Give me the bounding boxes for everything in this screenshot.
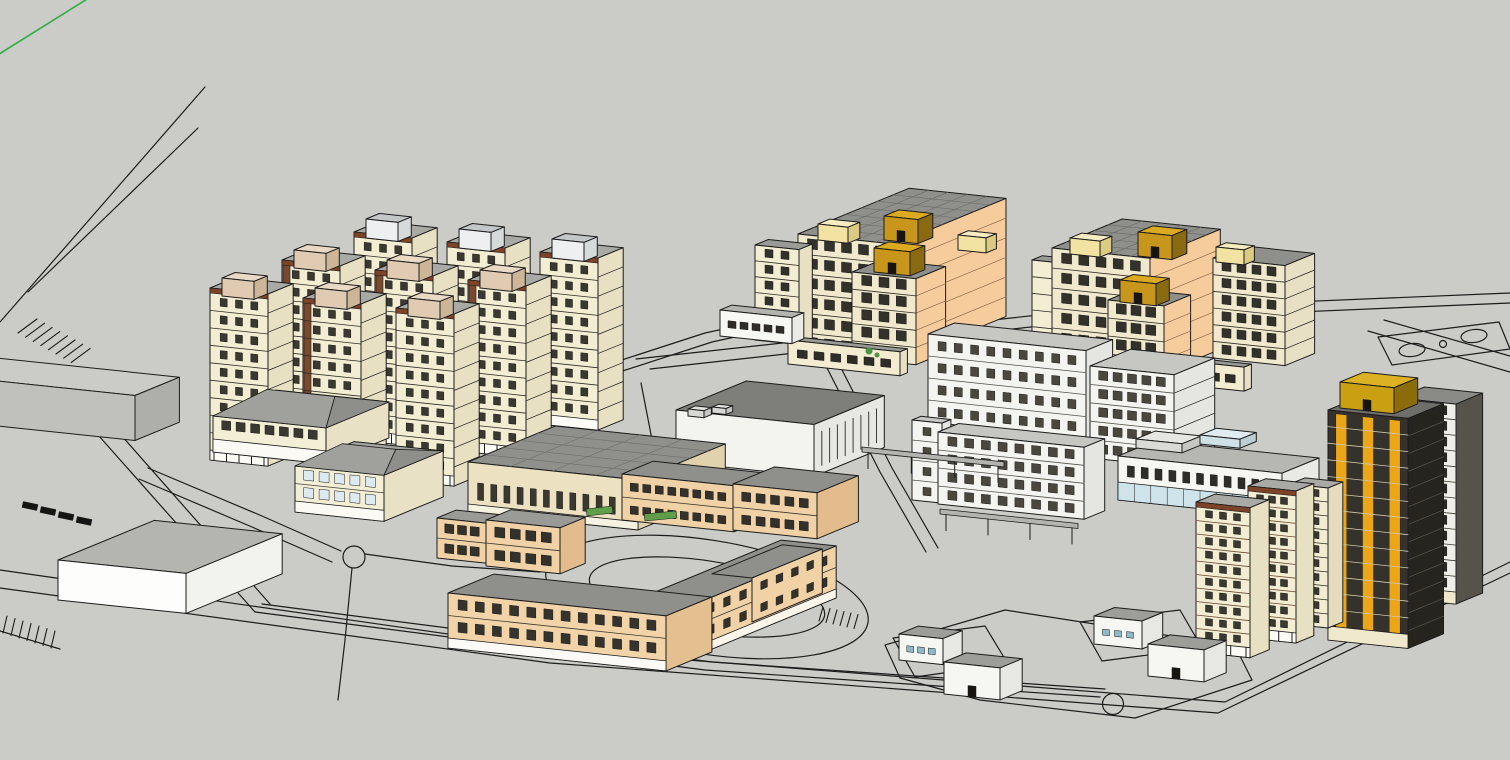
- model-viewport[interactable]: [0, 0, 1510, 760]
- school-west-annex-2: [486, 510, 585, 574]
- yellow-penthouse-a1: [818, 219, 860, 243]
- west-penthouse-white-1: [366, 214, 411, 242]
- tree-2: [875, 353, 880, 358]
- west-penthouse-white-3: [552, 234, 597, 262]
- white-slab-front: [938, 424, 1105, 520]
- gold-penthouse-a1: [884, 210, 933, 244]
- tree-1: [866, 348, 873, 355]
- clinic-roof-box-2: [1200, 428, 1256, 448]
- west-penthouse-tan-4: [222, 273, 267, 300]
- west-penthouse-tan-5: [315, 283, 360, 310]
- utility-kiosk-e2: [1148, 635, 1226, 682]
- utility-kiosk-w2: [944, 653, 1022, 700]
- application-window: [0, 0, 1510, 760]
- gold-penthouse-b2: [1120, 275, 1169, 306]
- school-far-east-block: [733, 467, 858, 539]
- yellow-penthouse-a2: [958, 231, 996, 253]
- gold-penthouse-east: [1340, 372, 1418, 414]
- white-slab-long: [928, 323, 1113, 439]
- east-tower-cream-1: [1196, 494, 1269, 658]
- office-strip-white: [720, 305, 804, 344]
- west-penthouse-tan-2: [387, 255, 432, 282]
- civic-roof-vent-2: [712, 404, 733, 414]
- civic-roof-vent-1: [688, 406, 711, 418]
- east-tower-dark-amber: [1328, 395, 1444, 648]
- west-penthouse-tan-1: [294, 245, 339, 272]
- yellow-penthouse-b2: [1216, 243, 1254, 265]
- west-penthouse-tan-3: [480, 265, 525, 292]
- yellow-penthouse-b1: [1070, 233, 1112, 257]
- gold-penthouse-a2: [874, 242, 925, 276]
- west-penthouse-tan-6: [408, 293, 453, 320]
- west-penthouse-white-2: [459, 224, 504, 252]
- gold-penthouse-b1: [1138, 226, 1187, 260]
- west-tower-back-3: [540, 242, 623, 431]
- west-tower-mid-3: [468, 270, 551, 459]
